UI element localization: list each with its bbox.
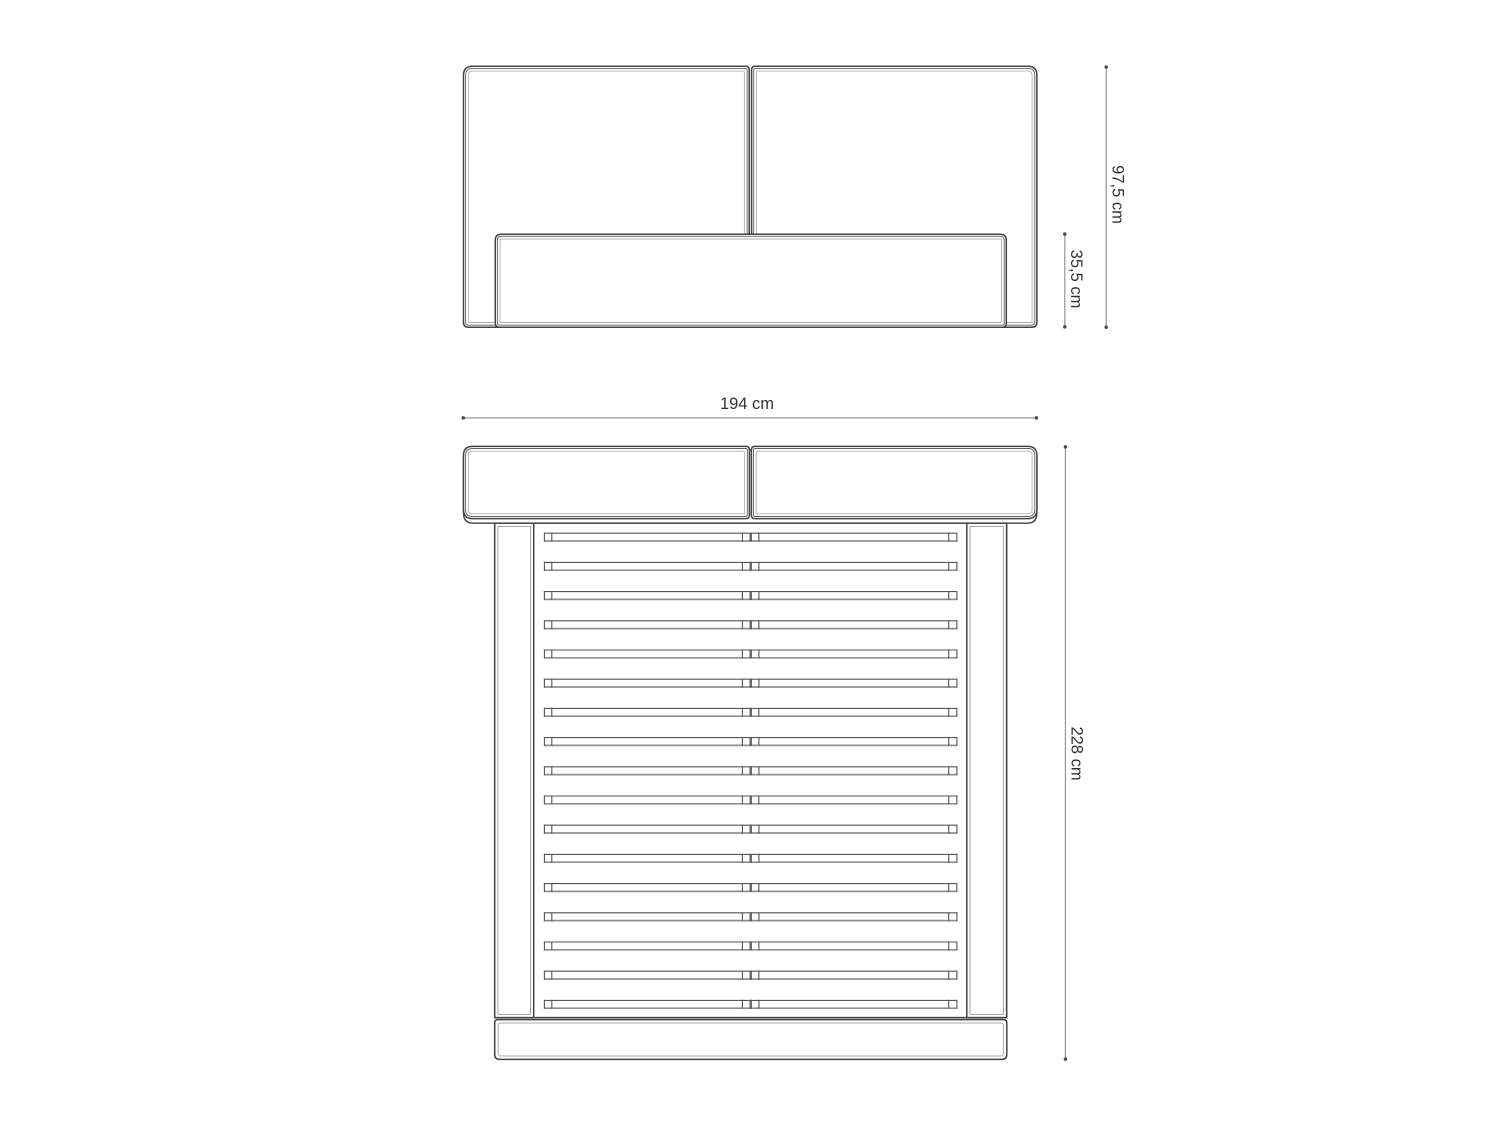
svg-text:228 cm: 228 cm	[1068, 726, 1086, 780]
svg-text:35,5 cm: 35,5 cm	[1067, 250, 1085, 309]
svg-text:97,5 cm: 97,5 cm	[1108, 165, 1126, 224]
svg-text:194 cm: 194 cm	[720, 395, 774, 413]
